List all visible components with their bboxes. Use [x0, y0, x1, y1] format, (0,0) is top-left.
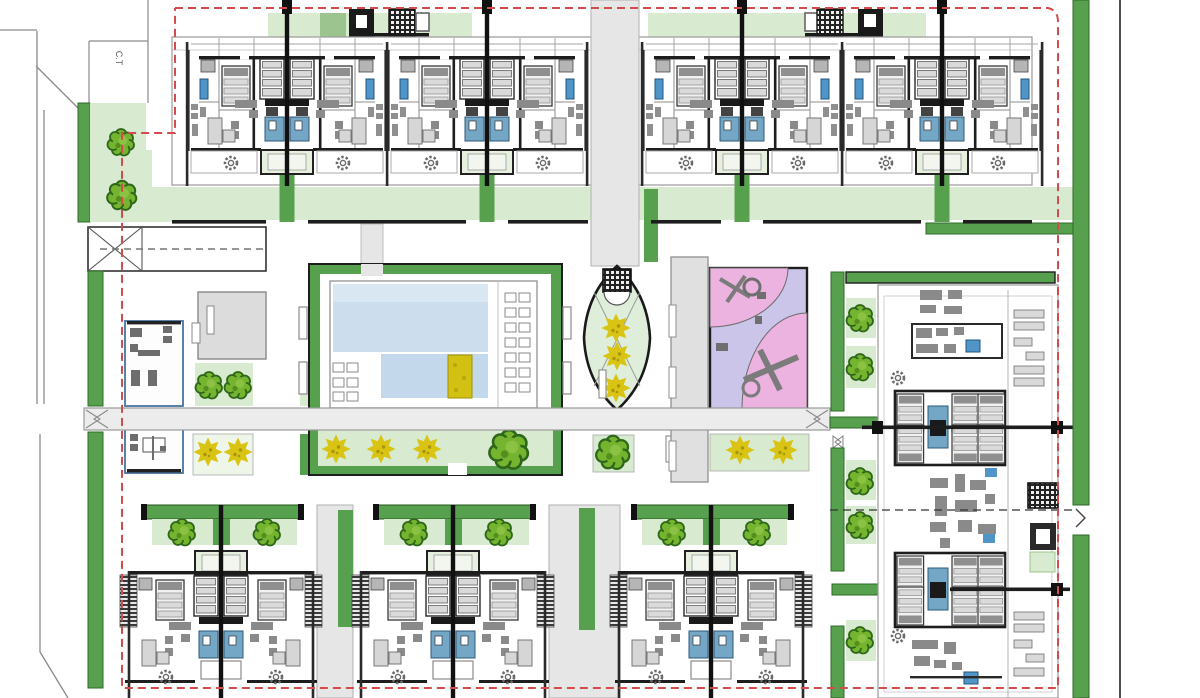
- svg-text:C.T: C.T: [114, 51, 124, 66]
